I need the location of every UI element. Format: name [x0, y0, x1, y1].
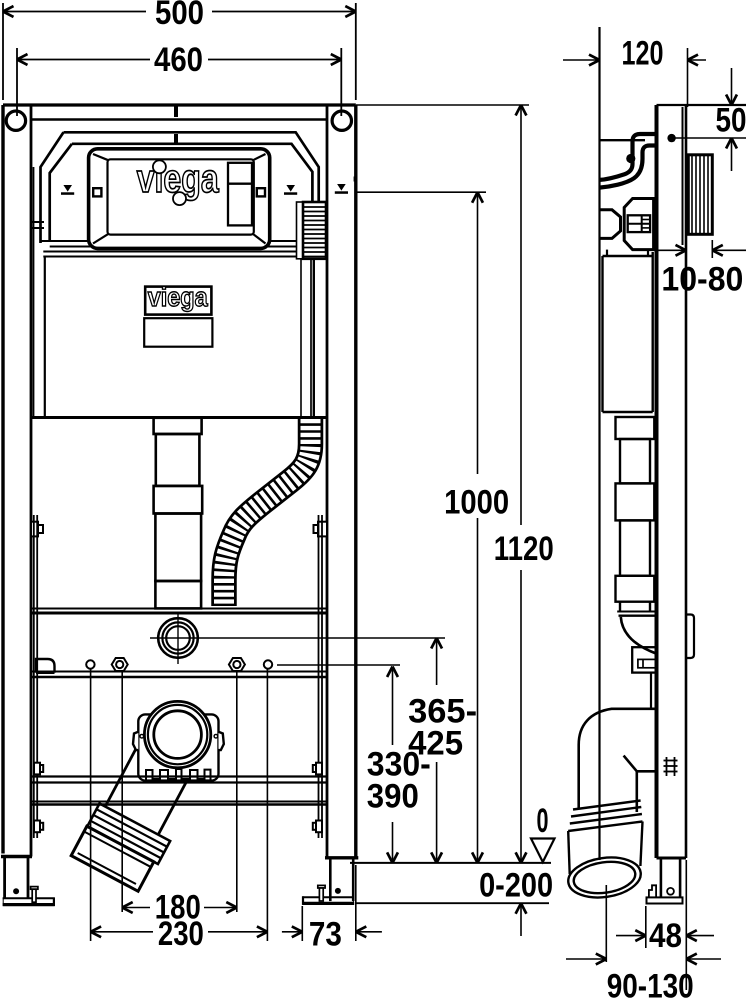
svg-text:10-80: 10-80 [661, 261, 743, 299]
svg-text:50: 50 [716, 102, 746, 140]
svg-text:120: 120 [622, 35, 664, 73]
svg-text:viega: viega [148, 282, 209, 312]
svg-text:73: 73 [309, 916, 342, 954]
svg-text:1120: 1120 [494, 530, 554, 568]
svg-text:90-130: 90-130 [607, 968, 694, 1000]
svg-text:460: 460 [154, 41, 203, 79]
svg-text:48: 48 [649, 917, 682, 955]
svg-text:500: 500 [155, 0, 204, 32]
svg-text:0-200: 0-200 [479, 867, 553, 905]
svg-text:230: 230 [158, 915, 204, 953]
svg-text:1000: 1000 [444, 484, 509, 522]
svg-text:390: 390 [367, 778, 419, 816]
svg-text:0: 0 [537, 802, 549, 840]
